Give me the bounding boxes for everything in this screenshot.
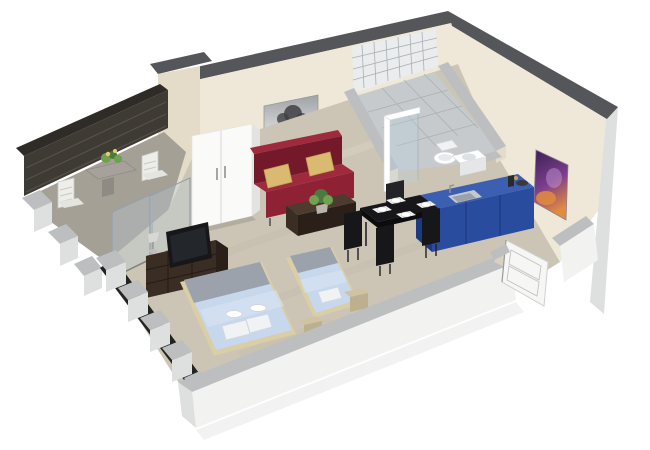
plate: [401, 212, 411, 217]
wardrobe: [192, 124, 260, 234]
bed-towel: [226, 311, 242, 318]
chair-back: [344, 210, 362, 250]
purple-art-highlight: [546, 168, 562, 188]
toilet-seat: [438, 154, 452, 161]
shower-frame-left-bar: [384, 114, 390, 192]
shower-glass-pane: [390, 113, 418, 188]
counter-bottle: [508, 175, 514, 187]
plate: [391, 198, 401, 203]
balcony-flower: [113, 149, 117, 153]
chair-back: [422, 208, 440, 246]
plate: [421, 202, 431, 207]
counter-bowl-gold: [514, 176, 518, 180]
purple-art-orange-blob: [536, 191, 556, 205]
lamp-base: [149, 249, 157, 253]
plant-foliage: [323, 195, 333, 205]
balcony-table-pedestal: [102, 177, 114, 197]
wardrobe-front: [192, 124, 252, 230]
floor-plan-render: [0, 0, 650, 450]
bed-towel: [250, 305, 266, 312]
plate: [377, 207, 387, 212]
balcony-flowers-leaf: [114, 155, 122, 163]
washbasin-bowl: [462, 154, 476, 161]
counter-bowl: [516, 180, 528, 186]
chair-back: [376, 224, 394, 266]
shower-glass-screen: [384, 107, 420, 192]
balcony-flower: [106, 152, 110, 156]
plant-foliage: [309, 195, 319, 205]
